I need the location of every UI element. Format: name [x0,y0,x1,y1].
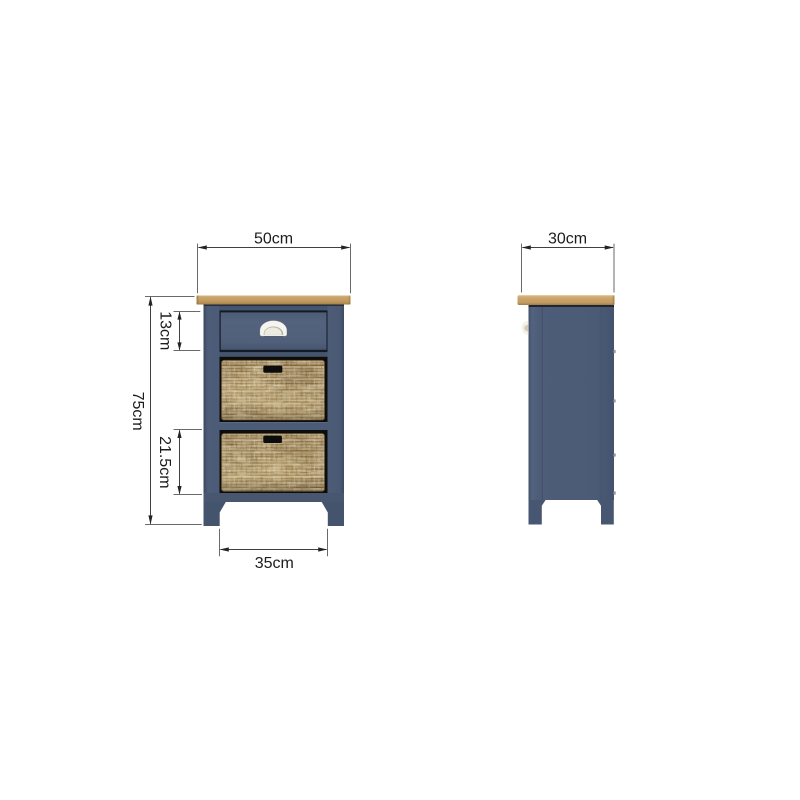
svg-text:50cm: 50cm [254,230,293,247]
svg-text:75cm: 75cm [129,392,146,431]
svg-text:35cm: 35cm [255,555,294,572]
svg-text:30cm: 30cm [548,230,587,247]
svg-text:13cm: 13cm [156,311,173,350]
svg-text:21.5cm: 21.5cm [156,436,173,488]
